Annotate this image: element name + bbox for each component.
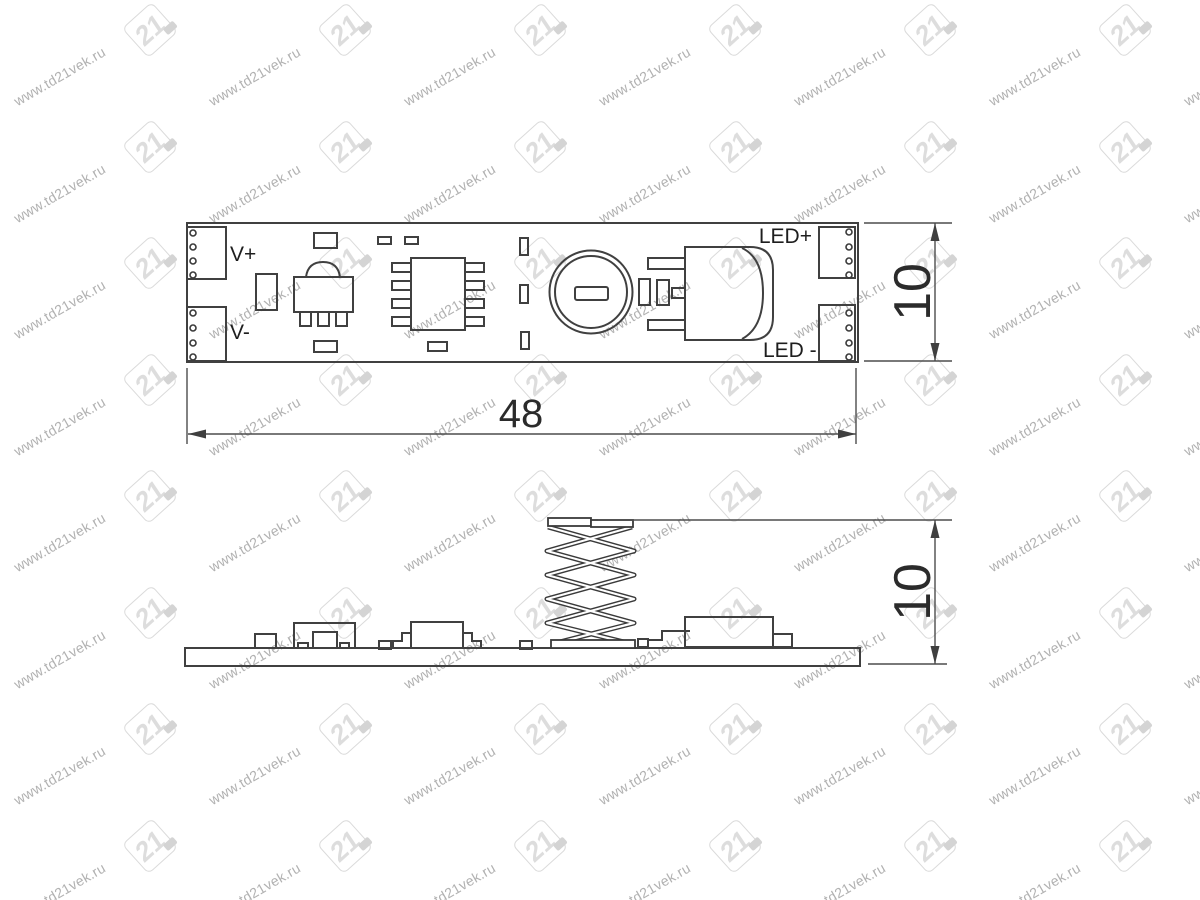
resistor [520,238,528,255]
arrowhead-down [931,646,940,664]
connector-v-minus [187,307,226,361]
top-view: V+ V- LED+ [187,223,858,362]
led-sensor-module-drawing: V+ V- LED+ [0,0,1200,900]
arrowhead-down [931,343,940,361]
pcb-outline-top-view [187,223,858,362]
pin-hole [846,258,852,264]
resistor-side [638,639,648,647]
pin-hole [190,310,196,316]
dimension-height-top-view: 10 [864,223,952,361]
pin-hole [846,310,852,316]
resistor [639,279,650,305]
label-v-plus: V+ [230,243,256,266]
arrowhead-left [188,430,206,439]
resistor [521,332,529,349]
resistor [520,285,528,303]
arrowhead-up [931,520,940,538]
pin-hole [190,325,196,331]
ic-chip [392,258,484,330]
dimension-height-side-view: 10 [598,520,952,664]
arrowhead-up [931,223,940,241]
pin-hole [846,354,852,360]
pin-hole [846,325,852,331]
mosfet-side [648,617,792,648]
resistor [314,341,337,352]
technical-drawing-page: www.td21vek.ru21www.td21vek.ru21www.td21… [0,0,1200,900]
resistor [378,237,391,244]
resistor [428,342,447,351]
pin-hole [190,258,196,264]
spring-top-cap [591,520,633,527]
dimension-value-height-side: 10 [884,563,942,621]
voltage-regulator [294,262,353,326]
ic-chip-side [393,622,481,648]
pin-hole [190,272,196,278]
capacitor [256,274,277,310]
pin-hole [846,340,852,346]
dimension-value-height-top: 10 [884,263,942,321]
dimension-value-width: 48 [499,392,544,436]
voltage-regulator-side [294,623,355,648]
resistor [405,237,418,244]
connector-v-plus [187,227,226,279]
resistor [657,280,669,305]
pin-hole [190,340,196,346]
connector-led-minus [819,305,855,361]
pin-hole [846,229,852,235]
label-led-plus: LED+ [759,225,812,248]
connector-led-plus [819,227,855,278]
capacitor-side [255,634,276,648]
pin-hole [846,244,852,250]
label-led-minus: LED - [763,339,817,362]
pin-hole [190,244,196,250]
touch-spring [547,518,635,648]
arrowhead-right [838,430,856,439]
spring-base [551,640,635,648]
side-view [185,518,860,666]
touch-pad-circle [550,251,633,334]
pcb-outline-side-view [185,648,860,666]
mosfet [648,247,773,340]
pin-hole [190,230,196,236]
pin-hole [190,354,196,360]
dimension-width-48: 48 [187,368,856,444]
resistor [314,233,337,248]
label-v-minus: V- [230,321,250,344]
spring-top-cap [548,518,591,526]
